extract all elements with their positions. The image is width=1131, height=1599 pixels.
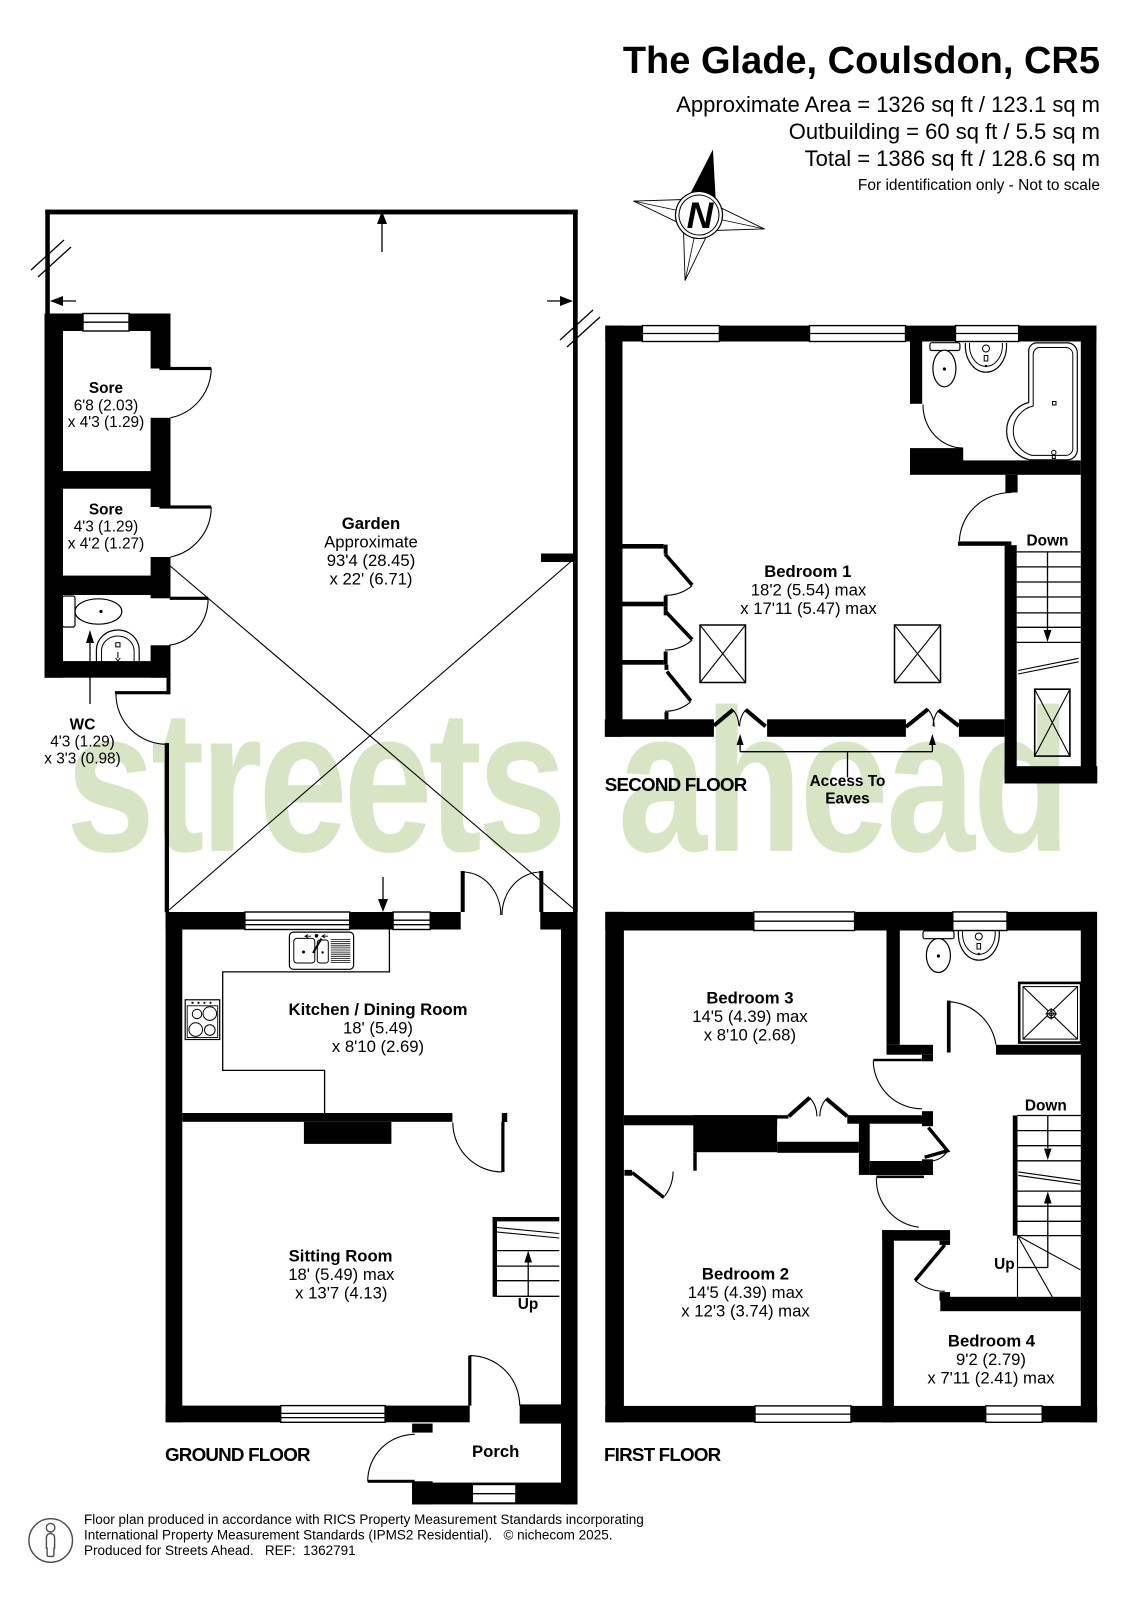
svg-text:x 13'7 (4.13): x 13'7 (4.13)	[295, 1284, 387, 1303]
svg-text:Access To: Access To	[810, 773, 886, 790]
svg-text:18' (5.49) max: 18' (5.49) max	[288, 1265, 395, 1284]
svg-text:Down: Down	[1027, 533, 1069, 550]
svg-text:Bedroom 2: Bedroom 2	[702, 1265, 789, 1284]
svg-text:Kitchen / Dining Room: Kitchen / Dining Room	[289, 1000, 468, 1019]
svg-text:14'5 (4.39) max: 14'5 (4.39) max	[692, 1007, 808, 1026]
svg-text:WC: WC	[70, 717, 96, 734]
svg-text:x 4'2 (1.27): x 4'2 (1.27)	[68, 536, 145, 553]
svg-text:Bedroom 3: Bedroom 3	[706, 989, 793, 1008]
svg-text:For identification only - Not: For identification only - Not to scale	[858, 177, 1100, 194]
svg-text:Sore: Sore	[89, 380, 124, 397]
svg-text:Garden: Garden	[342, 514, 400, 533]
svg-text:6'8 (2.03): 6'8 (2.03)	[74, 397, 139, 414]
svg-text:Porch: Porch	[472, 1442, 519, 1461]
svg-text:Bedroom 1: Bedroom 1	[764, 562, 851, 581]
svg-text:x 3'3 (0.98): x 3'3 (0.98)	[44, 751, 121, 768]
svg-text:Approximate: Approximate	[324, 533, 418, 552]
svg-text:streets: streets	[66, 666, 563, 894]
svg-text:Bedroom 4: Bedroom 4	[948, 1332, 1036, 1351]
svg-text:Approximate Area = 1326 sq ft: Approximate Area = 1326 sq ft / 123.1 sq…	[676, 92, 1100, 117]
svg-text:18' (5.49): 18' (5.49)	[343, 1019, 413, 1038]
svg-text:Sore: Sore	[89, 502, 124, 519]
svg-text:93'4 (28.45): 93'4 (28.45)	[327, 551, 416, 570]
svg-text:International Property Measure: International Property Measurement Stand…	[84, 1528, 612, 1543]
svg-text:SECOND FLOOR: SECOND FLOOR	[605, 774, 748, 795]
svg-text:x 4'3 (1.29): x 4'3 (1.29)	[68, 414, 145, 431]
svg-text:Eaves: Eaves	[825, 791, 870, 808]
svg-text:GROUND FLOOR: GROUND FLOOR	[165, 1444, 311, 1465]
svg-text:Up: Up	[994, 1256, 1015, 1273]
svg-text:N: N	[687, 195, 715, 236]
svg-text:4'3 (1.29): 4'3 (1.29)	[50, 734, 115, 751]
svg-text:14'5 (4.39) max: 14'5 (4.39) max	[688, 1283, 804, 1302]
svg-text:x 22' (6.71): x 22' (6.71)	[330, 570, 413, 589]
svg-text:Total = 1386 sq ft / 128.6 sq: Total = 1386 sq ft / 128.6 sq m	[805, 146, 1100, 171]
svg-text:The Glade, Coulsdon, CR5: The Glade, Coulsdon, CR5	[623, 40, 1100, 82]
svg-text:9'2 (2.79): 9'2 (2.79)	[956, 1350, 1026, 1369]
svg-text:Produced for Streets Ahead.: Produced for Streets Ahead. REF: 1362791	[84, 1543, 356, 1558]
svg-text:18'2 (5.54) max: 18'2 (5.54) max	[751, 581, 867, 600]
svg-text:Up: Up	[518, 1296, 539, 1313]
svg-text:x 12'3 (3.74) max: x 12'3 (3.74) max	[681, 1302, 810, 1321]
svg-text:Floor plan produced in accorda: Floor plan produced in accordance with R…	[84, 1512, 644, 1527]
svg-text:x 8'10 (2.68): x 8'10 (2.68)	[704, 1026, 796, 1045]
svg-text:x 8'10 (2.69): x 8'10 (2.69)	[332, 1037, 424, 1056]
svg-text:Outbuilding = 60 sq ft / 5.5 s: Outbuilding = 60 sq ft / 5.5 sq m	[789, 119, 1100, 144]
svg-text:Down: Down	[1025, 1098, 1067, 1115]
svg-text:Sitting Room: Sitting Room	[289, 1247, 393, 1266]
svg-text:x 17'11 (5.47) max: x 17'11 (5.47) max	[740, 599, 877, 618]
svg-text:x 7'11 (2.41) max: x 7'11 (2.41) max	[927, 1369, 1055, 1388]
svg-text:4'3 (1.29): 4'3 (1.29)	[74, 519, 139, 536]
svg-text:FIRST FLOOR: FIRST FLOOR	[604, 1444, 722, 1465]
